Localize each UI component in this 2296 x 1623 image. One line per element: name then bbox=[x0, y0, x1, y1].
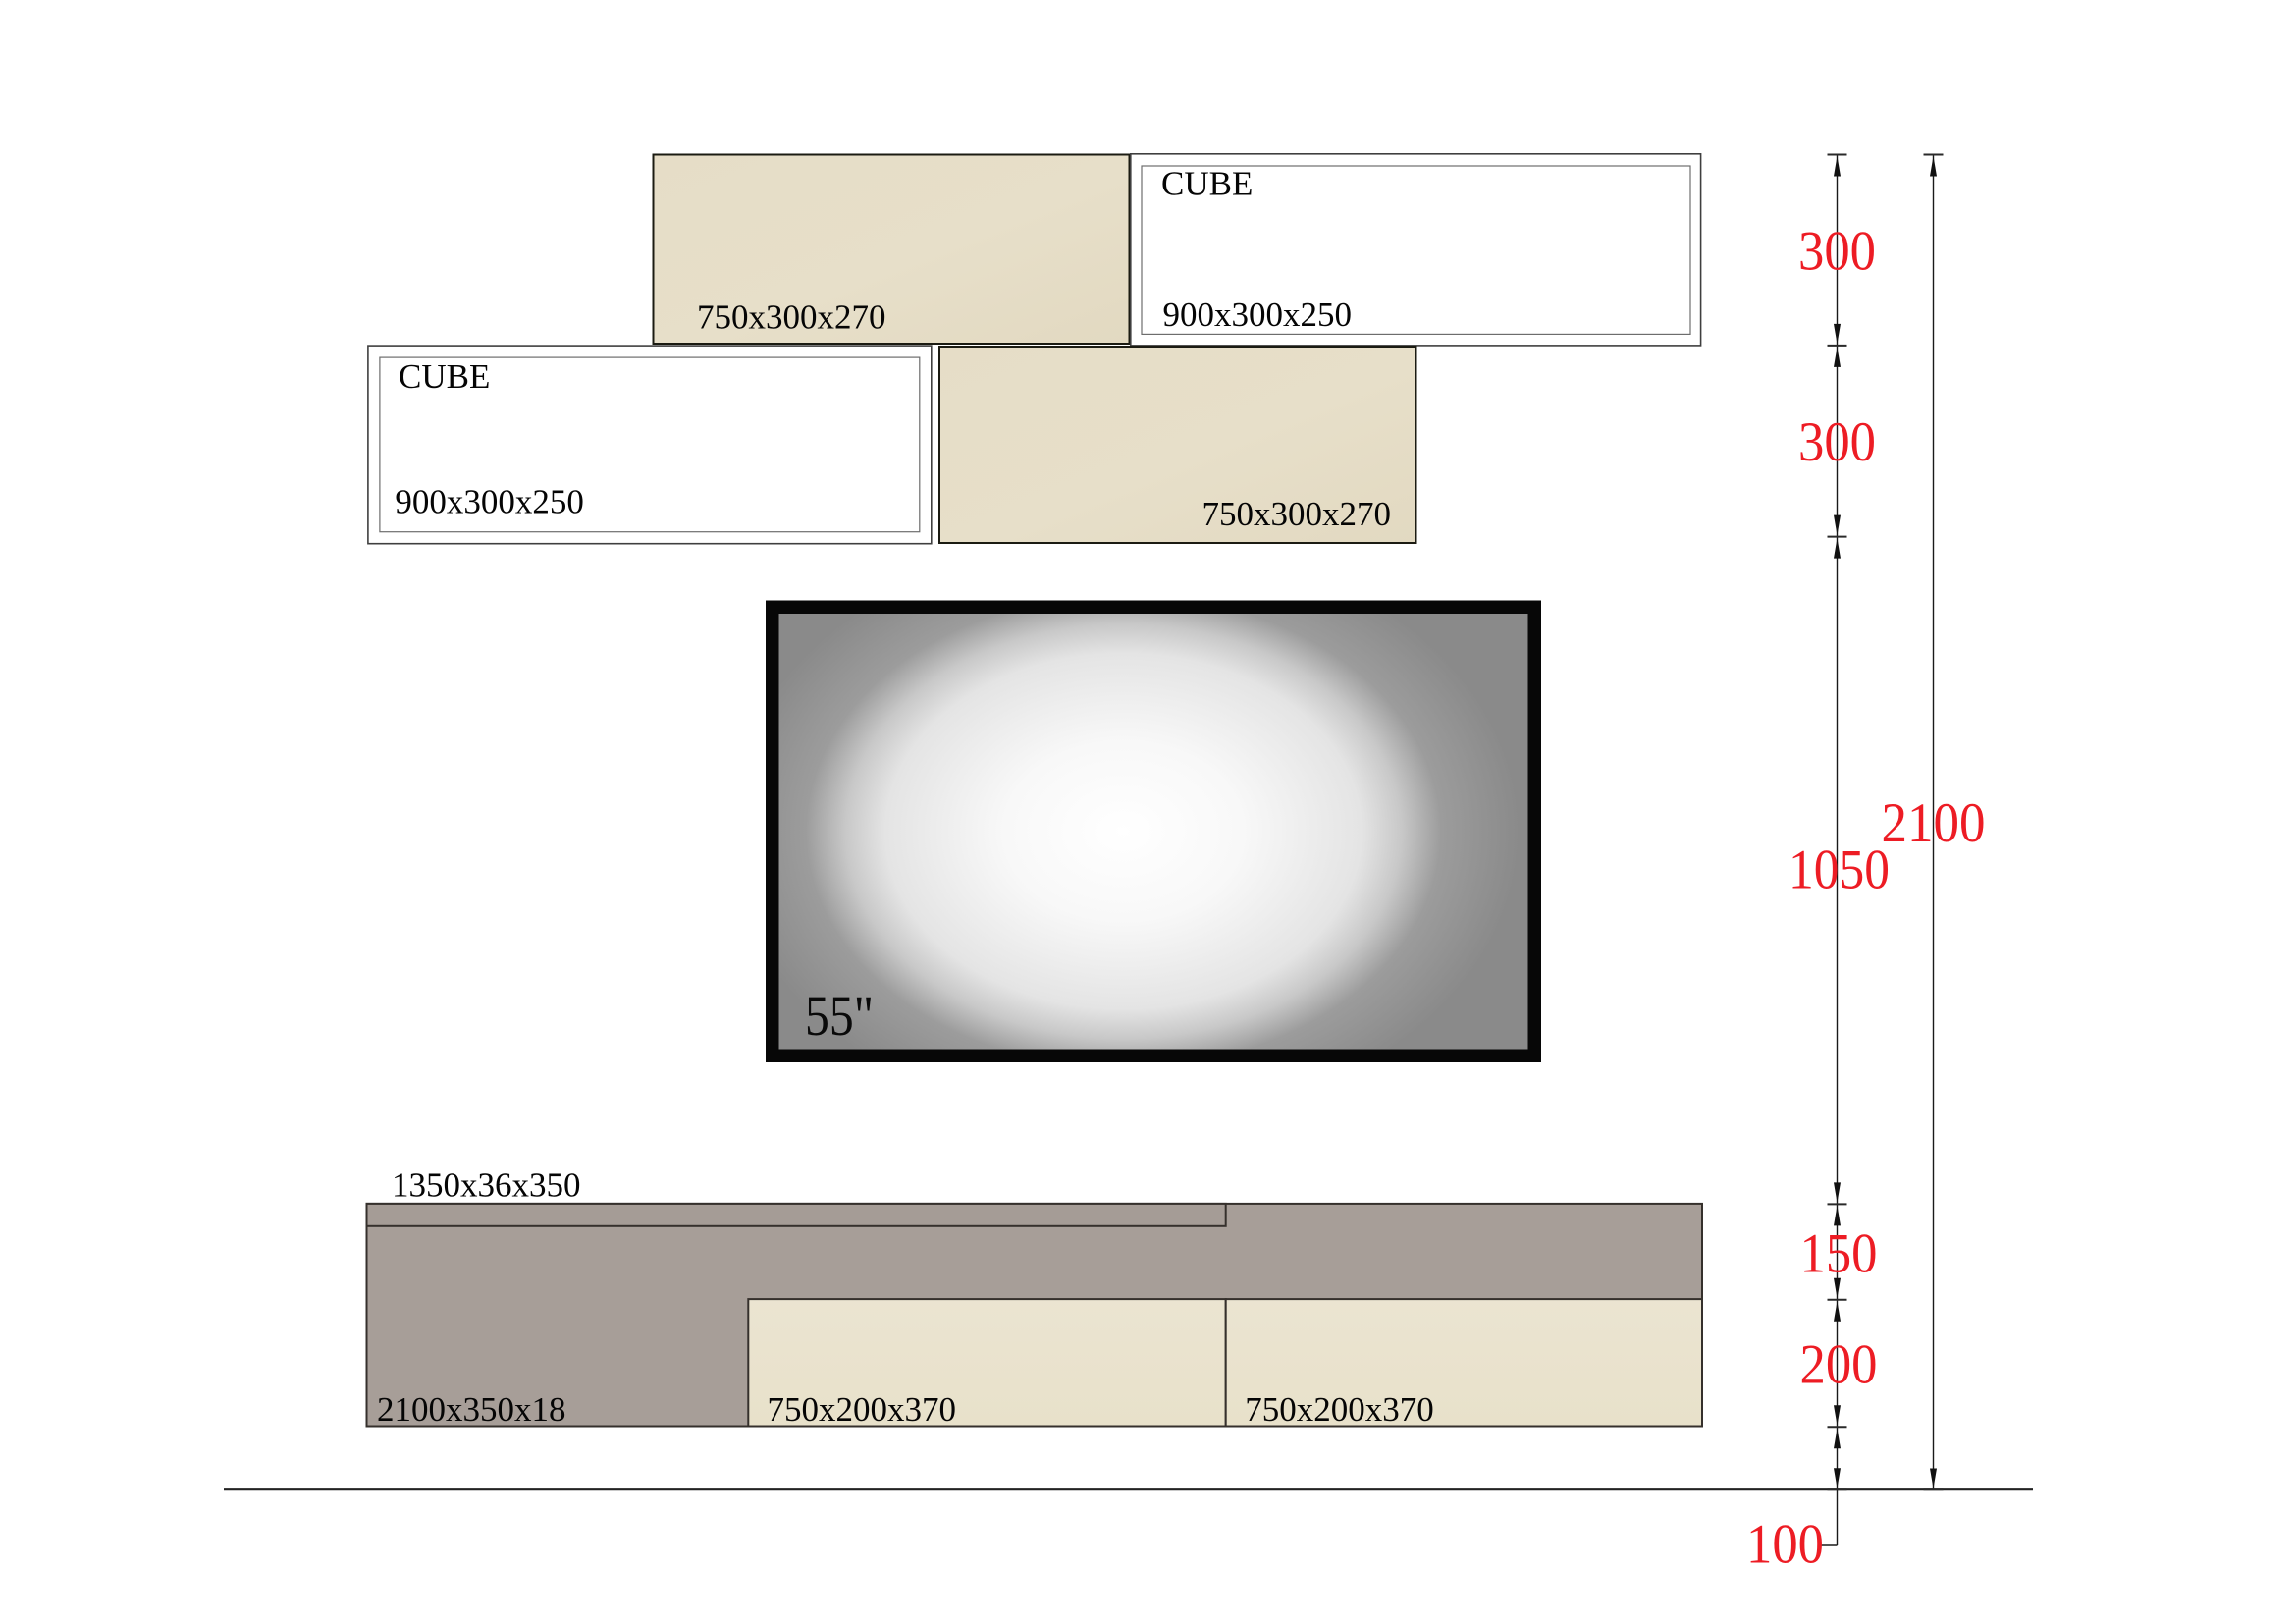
svg-text:CUBE: CUBE bbox=[1161, 165, 1253, 203]
svg-text:CUBE: CUBE bbox=[399, 357, 490, 396]
svg-text:750x300x270: 750x300x270 bbox=[697, 298, 886, 337]
svg-text:750x200x370: 750x200x370 bbox=[1245, 1390, 1434, 1429]
svg-text:1350x36x350: 1350x36x350 bbox=[392, 1166, 581, 1205]
svg-text:300: 300 bbox=[1798, 411, 1876, 473]
svg-text:100: 100 bbox=[1746, 1514, 1824, 1576]
svg-text:55": 55" bbox=[805, 984, 874, 1048]
svg-text:750x300x270: 750x300x270 bbox=[1202, 495, 1392, 533]
svg-text:2100x350x18: 2100x350x18 bbox=[377, 1390, 566, 1429]
svg-text:900x300x250: 900x300x250 bbox=[395, 483, 584, 521]
svg-text:300: 300 bbox=[1798, 221, 1876, 283]
svg-text:900x300x250: 900x300x250 bbox=[1163, 296, 1353, 334]
svg-text:1050: 1050 bbox=[1789, 839, 1890, 901]
svg-text:750x200x370: 750x200x370 bbox=[768, 1390, 957, 1429]
svg-text:200: 200 bbox=[1800, 1334, 1878, 1396]
svg-text:150: 150 bbox=[1800, 1222, 1878, 1284]
svg-text:2100: 2100 bbox=[1882, 792, 1986, 854]
